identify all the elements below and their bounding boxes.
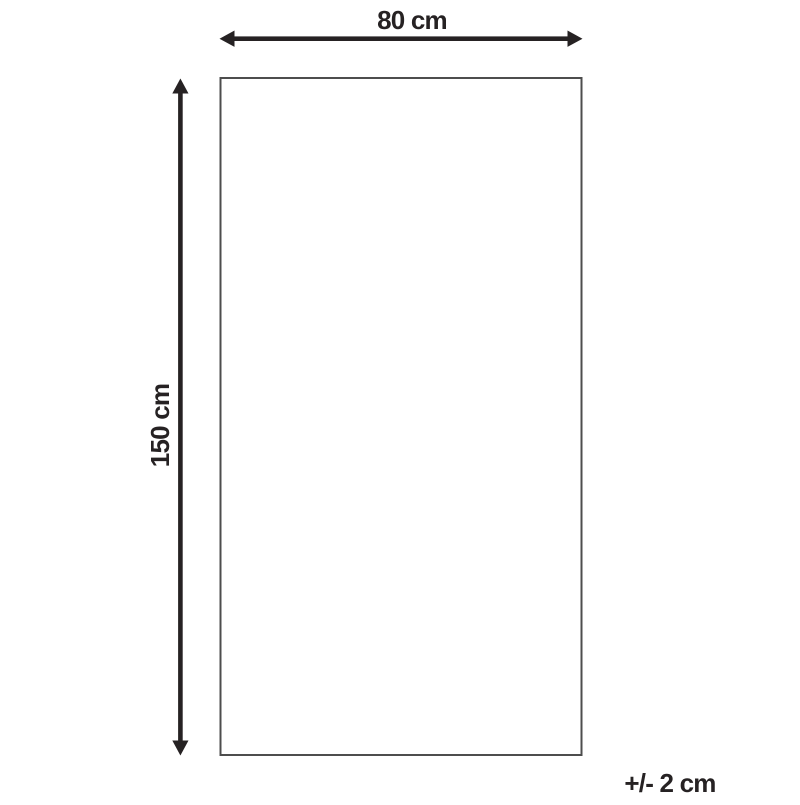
svg-text:+/- 2 cm: +/- 2 cm	[624, 768, 715, 798]
svg-text:150 cm: 150 cm	[145, 384, 175, 467]
svg-text:80 cm: 80 cm	[377, 5, 447, 35]
